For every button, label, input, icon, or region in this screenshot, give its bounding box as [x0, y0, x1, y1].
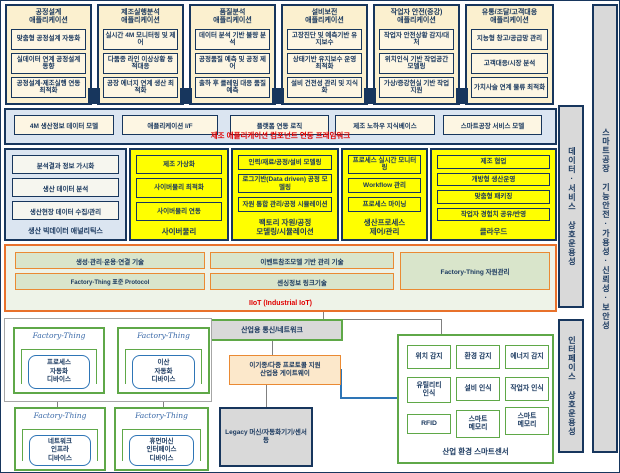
app-item: 실시간 4M 모니터링 및 제어 — [103, 29, 178, 50]
device-box: 네트워크 인프라 디바이스 — [29, 435, 91, 466]
framework-band: 4M 생산정보 데이터 모델 애플리케이션 I/F 플랫폼 연동 로직 제조 노… — [4, 108, 557, 145]
factory-thing-label: Factory-Thing — [15, 331, 103, 340]
industrial-network-box: 산업용 통신/네트워크 — [201, 319, 343, 341]
app-item: 다품종 라인 이상상황 동적대응 — [103, 53, 178, 74]
column-connector — [88, 88, 100, 104]
app-column-worker-safety: 작업자 안전(증강) 애플리케이션 작업자 안전상황 감지/대처 위치인식 기반… — [373, 4, 460, 105]
sensor-cell: 에너지 감지 — [505, 345, 549, 369]
factory-thing-group: Factory-Thing 프로세스 자동화 디바이스 — [13, 327, 105, 394]
sidebar-label: 스마트공장 기능안전·가용성·신뢰성·보안성 — [601, 128, 610, 330]
connector-stub — [272, 341, 273, 355]
iiot-box: 센싱정보 링크기술 — [210, 273, 394, 290]
app-item: 맞춤형 공정설계 자동화 — [11, 29, 86, 50]
app-item: 공정설계-제조실행 연동 최적화 — [11, 77, 86, 98]
app-item: 공정품질 예측 및 공정 제어 — [195, 53, 270, 74]
app-column-title: 제조실행분석 애플리케이션 — [99, 6, 182, 28]
app-item: 고장진단 및 예측기반 유지보수 — [287, 29, 362, 50]
big-data-analytics-panel: 분석결과 정보 가시화 생산 데이터 분석 생산현장 데이터 수집/관리 생산 … — [4, 148, 127, 241]
sensor-cell: 작업자 인식 — [505, 377, 549, 401]
factory-thing-label: Factory-Thing — [16, 411, 104, 420]
yellow-item: Workflow 관리 — [348, 178, 421, 193]
app-item: 고객대응/시장 분석 — [471, 53, 548, 74]
smart-factory-architecture-diagram: 공정설계 애플리케이션 맞춤형 공정설계 자동화 실데이터 연계 공정설계 동향… — [0, 0, 620, 473]
app-column-title: 작업자 안전(증강) 애플리케이션 — [375, 6, 458, 28]
column-connector — [364, 88, 376, 104]
connector-stub — [266, 385, 267, 407]
app-column-title: 설비보전 애플리케이션 — [283, 6, 366, 28]
column-connector — [180, 88, 192, 104]
column-connector — [456, 88, 468, 104]
sensor-cell: 환경 감지 — [456, 345, 500, 369]
app-column-items: 맞춤형 공정설계 자동화 실데이터 연계 공정설계 동향 공정설계-제조실행 연… — [7, 28, 90, 103]
factory-thing-group: Factory-Thing 네트워크 인프라 디바이스 — [14, 407, 106, 471]
app-item: 지능형 창고/공급망 관리 — [471, 29, 548, 50]
gateway-sensor-connector — [340, 397, 399, 399]
app-column-distribution: 유통/조달/고객대응 애플리케이션 지능형 창고/공급망 관리 고객대응/시장 … — [465, 4, 554, 105]
app-item: 데이터 분석 기반 불량 분석 — [195, 29, 270, 50]
yellow-item: 인력/재료/공정/설비 모델링 — [238, 155, 332, 170]
column-connector — [272, 88, 284, 104]
yellow-item: 작업자 경험치 공유/반영 — [437, 208, 550, 222]
device-box: 이산 자동화 디바이스 — [132, 355, 195, 389]
analytics-item: 분석결과 정보 가시화 — [12, 155, 119, 174]
app-item: 출하 후 클레임 대응 품질예측 — [195, 77, 270, 98]
sensor-cell: 위치 감지 — [407, 345, 451, 369]
app-item: 가치사슬 연계 물류 최적화 — [471, 77, 548, 98]
app-item: 설비 건전성 관리 및 지식화 — [287, 77, 362, 98]
iiot-band-label: IIoT (Industrial IoT) — [6, 300, 555, 307]
sensor-cell: 설비 인식 — [456, 377, 500, 401]
yellow-item: 개방형 생산운영 — [437, 173, 550, 187]
yellow-item: 맞춤형 패키징 — [437, 190, 550, 204]
yellow-column-label: 팩토리 자원/공정 모델링/시뮬레이션 — [238, 216, 332, 237]
factory-thing-label: Factory-Thing — [119, 331, 208, 340]
app-item: 위치인식 기반 작업공간 모델링 — [379, 53, 454, 74]
app-column-maintenance: 설비보전 애플리케이션 고장진단 및 예측기반 유지보수 상태기반 유지보수 운… — [281, 4, 368, 105]
analytics-item: 생산 데이터 분석 — [12, 178, 119, 197]
yellow-item: 사이버물리 연동 — [136, 202, 222, 221]
device-box: 프로세스 자동화 디바이스 — [28, 355, 90, 389]
yellow-item: 사이버물리 최적화 — [136, 178, 222, 197]
yellow-column-label: 사이버물리 — [136, 225, 222, 237]
yellow-item: 로그기반(Data driven) 공정 모델링 — [238, 174, 332, 193]
app-column-process-design: 공정설계 애플리케이션 맞춤형 공정설계 자동화 실데이터 연계 공정설계 동향… — [5, 4, 92, 105]
app-column-quality: 품질분석 애플리케이션 데이터 분석 기반 불량 분석 공정품질 예측 및 공정… — [189, 4, 276, 105]
iiot-box: 이벤트참조모델 기반 관리 기술 — [210, 252, 394, 269]
yellow-item: 자원 통합 관리/공정 시뮬레이션 — [238, 197, 332, 212]
app-item: 상태기반 유지보수 운영 최적화 — [287, 53, 362, 74]
app-column-title: 품질분석 애플리케이션 — [191, 6, 274, 28]
iiot-band: 생성·관리·운용·연결 기술 Factory-Thing 표준 Protocol… — [4, 244, 557, 312]
sidebar-data-service-interop: 데이터·서비스 상호운용성 — [558, 105, 584, 308]
yellow-item: 제조 가상화 — [136, 155, 222, 174]
analytics-item: 생산현장 데이터 수집/관리 — [12, 201, 119, 220]
app-column-items: 실시간 4M 모니터링 및 제어 다품종 라인 이상상황 동적대응 공장 에너지… — [99, 28, 182, 103]
yellow-column-label: 생산프로세스 제어/관리 — [348, 216, 421, 237]
legacy-devices-box: Legacy 머신/자동화기기/센서 등 — [219, 407, 313, 467]
sensor-cell: 스마트 메모리 — [505, 407, 549, 435]
app-item: 작업자 안전상황 감지/대처 — [379, 29, 454, 50]
sensor-panel-label: 산업 환경 스마트센서 — [399, 446, 552, 457]
factory-thing-label: Factory-Thing — [116, 411, 207, 420]
connector-stub — [441, 319, 442, 335]
app-column-items: 지능형 창고/공급망 관리 고객대응/시장 분석 가치사슬 연계 물류 최적화 — [467, 28, 552, 103]
sidebar-label: 인터페이스 상호운용성 — [567, 336, 576, 436]
sensor-cell: 스마트 메모리 — [456, 410, 500, 438]
yellow-column-process-control: 프로세스 실시간 모니터링 Workflow 관리 프로세스 마이닝 생산프로세… — [341, 148, 428, 241]
framework-band-label: 제조 애플리케이션 컴포넌트 연동 프레임워크 — [6, 130, 555, 141]
analytics-panel-label: 생산 빅데이터 애널리틱스 — [12, 224, 119, 237]
industrial-gateway-box: 이기종/다중 프로토콜 지원 산업용 게이트웨이 — [229, 355, 341, 385]
yellow-item: 프로세스 실시간 모니터링 — [348, 155, 421, 174]
factory-thing-group: Factory-Thing 휴먼머신 인터페이스 디바이스 — [114, 407, 209, 471]
sensor-cell: 유틸리티 인식 — [407, 377, 451, 403]
yellow-column-cyber-physical: 제조 가상화 사이버물리 최적화 사이버물리 연동 사이버물리 — [129, 148, 229, 241]
sidebar-label: 데이터·서비스 상호운용성 — [567, 147, 576, 266]
iiot-box: Factory-Thing 자원관리 — [400, 252, 550, 290]
app-column-items: 고장진단 및 예측기반 유지보수 상태기반 유지보수 운영 최적화 설비 건전성… — [283, 28, 366, 103]
app-item: 실데이터 연계 공정설계 동향 — [11, 53, 86, 74]
app-item: 공장 에너지 연계 생산 최적화 — [103, 77, 178, 98]
smart-sensor-panel: 위치 감지 환경 감지 에너지 감지 유틸리티 인식 설비 인식 작업자 인식 … — [397, 334, 554, 464]
yellow-item: 제조 협업 — [437, 155, 550, 169]
app-column-items: 작업자 안전상황 감지/대처 위치인식 기반 작업공간 모델링 가상/증강현실 … — [375, 28, 458, 103]
iiot-box: 생성·관리·운용·연결 기술 — [15, 252, 205, 269]
app-column-title: 공정설계 애플리케이션 — [7, 6, 90, 28]
device-box: 휴먼머신 인터페이스 디바이스 — [129, 435, 194, 466]
sensor-cell: RFID — [407, 414, 451, 434]
app-column-title: 유통/조달/고객대응 애플리케이션 — [467, 6, 552, 28]
app-item: 가상/증강현실 기반 작업지원 — [379, 77, 454, 98]
app-column-mes-analysis: 제조실행분석 애플리케이션 실시간 4M 모니터링 및 제어 다품종 라인 이상… — [97, 4, 184, 105]
sidebar-interface-interop: 인터페이스 상호운용성 — [558, 319, 584, 453]
yellow-column-factory-modeling: 인력/재료/공정/설비 모델링 로그기반(Data driven) 공정 모델링… — [231, 148, 339, 241]
sidebar-safety-reliability-security: 스마트공장 기능안전·가용성·신뢰성·보안성 — [592, 4, 618, 453]
yellow-column-cloud: 제조 협업 개방형 생산운영 맞춤형 패키징 작업자 경험치 공유/반영 클라우… — [430, 148, 557, 241]
iiot-box: Factory-Thing 표준 Protocol — [15, 273, 205, 290]
yellow-item: 프로세스 마이닝 — [348, 197, 421, 212]
yellow-column-label: 클라우드 — [437, 225, 550, 237]
app-column-items: 데이터 분석 기반 불량 분석 공정품질 예측 및 공정 제어 출하 후 클레임… — [191, 28, 274, 103]
factory-thing-group: Factory-Thing 이산 자동화 디바이스 — [117, 327, 210, 394]
